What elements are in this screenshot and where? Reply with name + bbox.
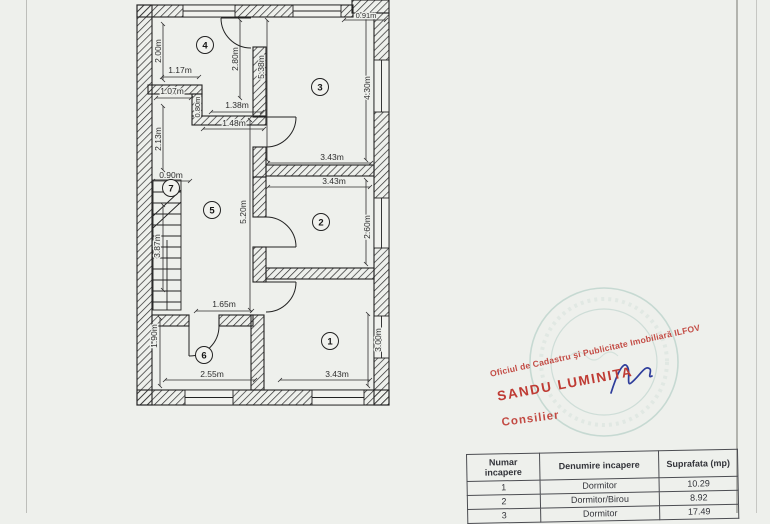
dim-label: 3.43m [325, 369, 349, 379]
door-room2 [266, 217, 296, 247]
dim-label: 5.20m [238, 200, 248, 224]
svg-text:1: 1 [327, 337, 333, 348]
room-label-3: 3 [312, 79, 329, 96]
table-cell: 17.49 [660, 504, 739, 520]
table-cell: 8.92 [659, 490, 738, 506]
table-header-denumire: Denumire incapere [539, 451, 658, 480]
dim-label: 1.07m [160, 86, 184, 96]
table-cell: 2 [467, 494, 540, 509]
door-room1 [266, 282, 296, 312]
svg-text:3: 3 [317, 83, 322, 94]
svg-text:7: 7 [168, 184, 173, 195]
table-cell: Dormitor [541, 506, 660, 522]
table-cell: 3 [468, 508, 541, 523]
table-cell: 10.29 [659, 476, 738, 492]
dim-label: 0.80m [193, 97, 202, 118]
dim-label: 1.48m [222, 118, 246, 128]
window-bottom-1 [185, 390, 233, 405]
dim-label: 1.90m [149, 324, 159, 348]
svg-text:2: 2 [318, 218, 323, 229]
room-label-7: 7 [163, 180, 180, 197]
dim-label: 0.91m [356, 11, 377, 20]
table-header-suprafata: Suprafata (mp) [658, 449, 738, 478]
dim-label: 1.17m [168, 65, 192, 75]
table-cell: 1 [467, 480, 540, 495]
page-edge-lines [27, 0, 757, 513]
dim-label: 3.87m [152, 234, 162, 258]
dim-label: 4.30m [362, 76, 372, 100]
window-right-1 [374, 60, 389, 112]
window-bottom-2 [312, 390, 364, 405]
svg-text:6: 6 [201, 351, 206, 362]
window-top-1 [183, 5, 235, 17]
door-room3 [266, 117, 296, 147]
svg-text:5: 5 [209, 206, 215, 217]
dim-label: 2.60m [362, 215, 372, 239]
dim-label: 0.90m [159, 170, 183, 180]
door-top [221, 18, 251, 48]
svg-text:4: 4 [202, 41, 208, 52]
table-header-numar: Numar incapere [467, 453, 541, 481]
dim-label: 1.38m [225, 100, 249, 110]
dim-label: 2.80m [230, 47, 240, 71]
window-right-2 [374, 198, 389, 248]
floor-plan-drawing: 2.00m 1.17m 1.07m 0.80m 1.38m 1.48m 2.13… [0, 0, 770, 513]
dim-label: 5.38m [256, 55, 266, 79]
room-label-4: 4 [197, 37, 214, 54]
room-label-2: 2 [313, 214, 330, 231]
dim-label: 2.00m [153, 39, 163, 63]
scanned-document-page: { "plan": { "room_numbers": ["1","2","3"… [0, 0, 770, 513]
dim-label: 2.55m [200, 369, 224, 379]
dim-label: 1.65m [212, 299, 236, 309]
dim-label: 3.43m [322, 176, 346, 186]
room-label-1: 1 [322, 333, 339, 350]
room-label-6: 6 [196, 347, 213, 364]
window-top-2 [293, 5, 341, 17]
dim-label: 3.43m [320, 152, 344, 162]
room-label-5: 5 [204, 202, 221, 219]
dim-label: 2.13m [153, 127, 163, 151]
dim-label: 3.00m [373, 328, 383, 352]
